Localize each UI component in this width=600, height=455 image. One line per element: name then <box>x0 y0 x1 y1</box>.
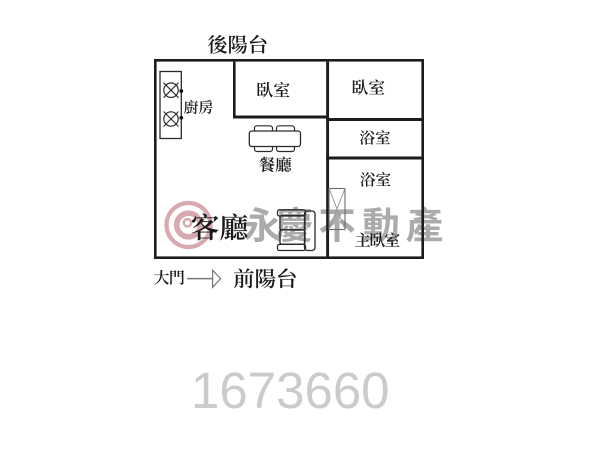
svg-text:1673660: 1673660 <box>191 362 390 419</box>
